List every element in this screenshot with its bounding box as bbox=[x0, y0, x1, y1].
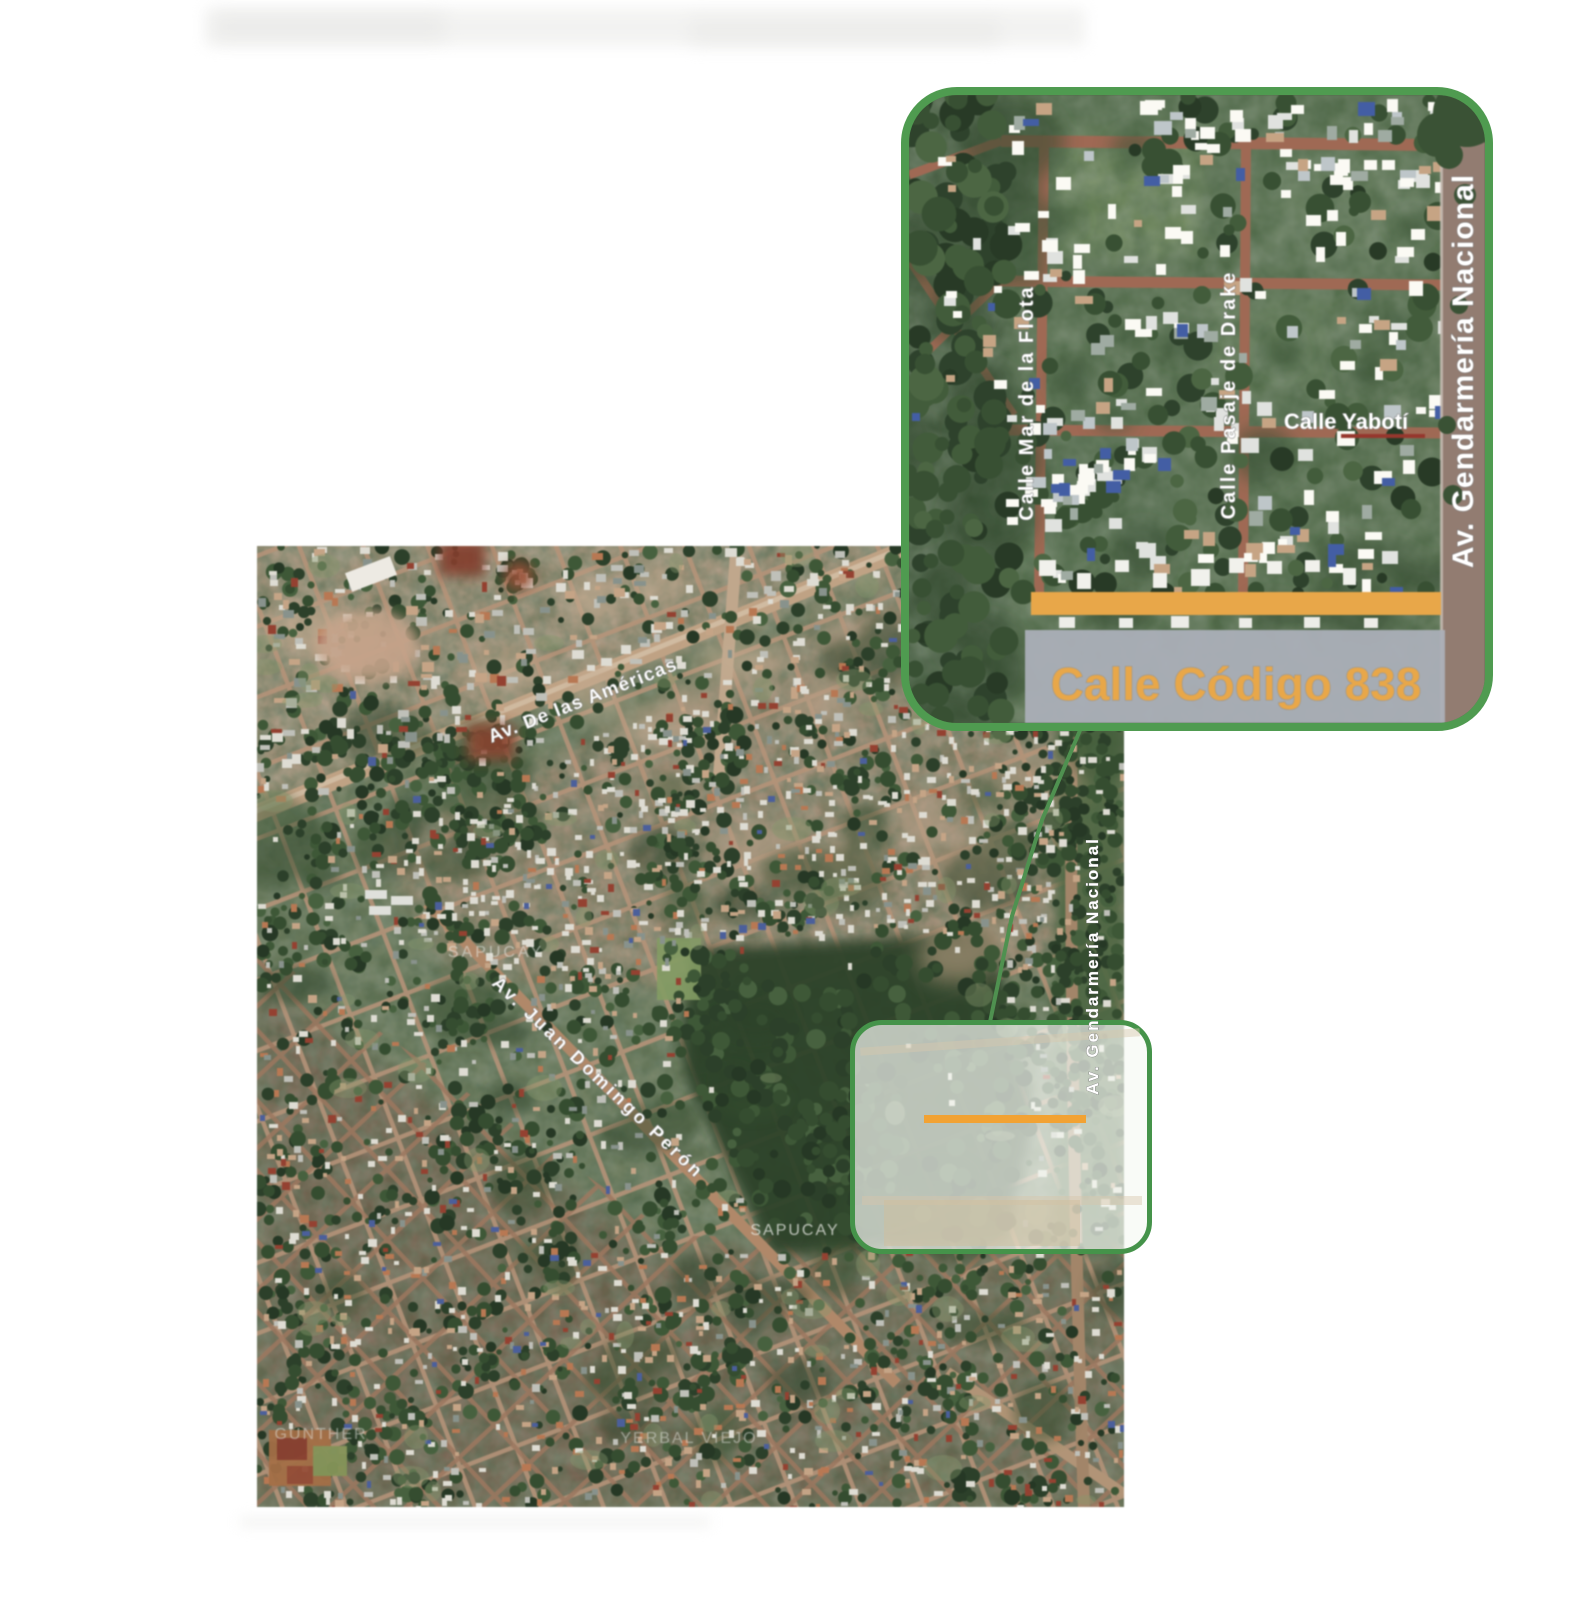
svg-text:YERBAL VIEJO: YERBAL VIEJO bbox=[620, 1430, 757, 1447]
svg-text:GUNTHER: GUNTHER bbox=[274, 1426, 367, 1443]
svg-text:SAPUCAY: SAPUCAY bbox=[448, 944, 544, 961]
svg-text:SAPUCAY: SAPUCAY bbox=[750, 1222, 839, 1239]
